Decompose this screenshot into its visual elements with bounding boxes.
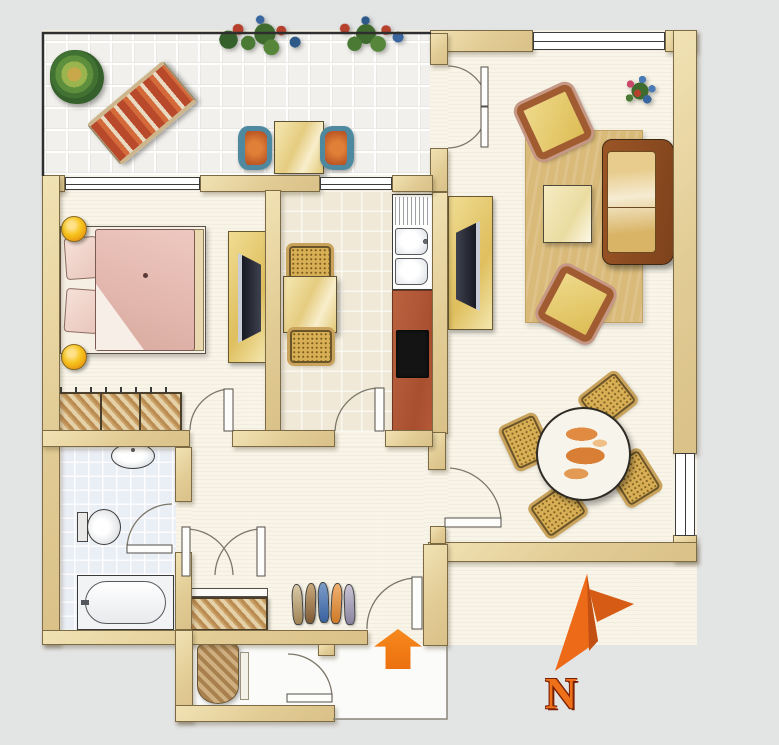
flower-box [323,7,409,62]
wall [430,33,448,65]
wall [200,175,320,192]
cushion-divider [608,207,655,208]
duvet [95,229,195,351]
bistro-chair [238,126,272,170]
hanger-ticks [60,387,180,393]
wall [42,175,60,645]
rolled-mat [197,644,239,704]
coffee-table [543,185,592,243]
wall [175,552,192,630]
basin-drain [131,448,135,452]
kitchen-chair [290,330,332,363]
wall [175,447,192,502]
floor-plan: N [0,0,779,745]
wall [175,705,335,722]
wall [673,30,697,454]
wall [430,526,446,544]
wall [392,175,433,192]
flower-bouquet [616,68,664,114]
kitchen-sink-unit [392,194,433,290]
hall-wardrobe [179,597,268,631]
duvet-button [143,273,148,278]
sofa-cushions [607,151,656,253]
mat-edge [240,652,249,700]
wall [428,542,697,562]
wall [423,544,448,646]
toilet-bowl [87,509,121,545]
wardrobe-divider [100,394,102,431]
kitchen-counter [392,290,433,434]
bistro-chair [320,126,354,170]
faucet [423,239,428,244]
wardrobe-divider [139,394,141,431]
bedside-lamp [61,344,87,370]
bedroom-tv-stand [228,231,266,363]
kitchen-window [320,177,392,190]
wall [42,630,368,645]
compass-north-label: N [538,668,584,719]
flower-box [217,6,310,65]
bedroom-wardrobe [58,392,182,433]
duvet-fold [96,284,144,350]
wall [432,192,448,434]
kitchen-table [283,276,337,333]
shoe [304,583,316,624]
tub-faucet [81,600,89,605]
round-dining-table [536,407,631,501]
shoe [317,582,329,623]
bistro-table [274,121,324,174]
living-tv-stand [448,196,493,330]
wall [385,430,433,447]
wall [42,430,190,447]
tub-basin [85,581,166,624]
sofa [602,139,674,265]
sink-basin [395,258,428,285]
living-room-window-side [675,453,695,536]
double-bed [60,226,206,354]
drainboard [395,197,430,225]
bathtub [77,575,174,630]
wall [318,644,335,656]
wall [232,430,335,447]
cooktop [396,330,429,378]
hall-wardrobe-front [179,588,268,597]
bedroom-window [65,177,200,190]
living-tv [456,221,480,311]
kitchen-chair [289,246,331,279]
potted-plant [50,50,104,104]
shoe [343,584,355,625]
wall [265,190,281,437]
bedroom-tv [238,253,261,343]
living-room-window-top [533,32,665,50]
toilet [77,508,122,546]
bedside-lamp [61,216,87,242]
